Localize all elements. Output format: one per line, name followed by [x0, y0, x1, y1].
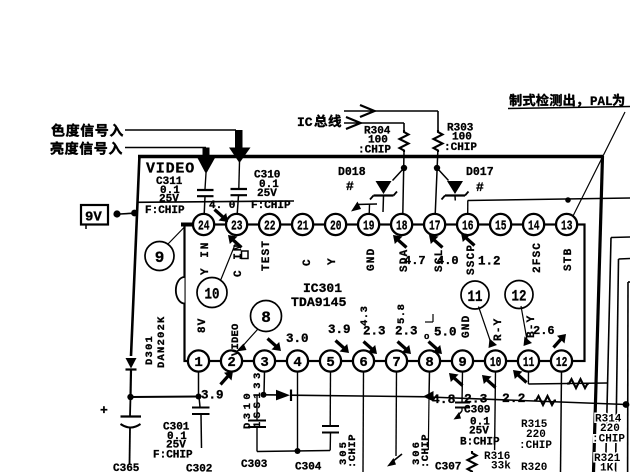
svg-text:4.3: 4.3 [359, 306, 371, 326]
svg-text:R-Y: R-Y [493, 318, 505, 341]
svg-text:1.2: 1.2 [478, 255, 501, 269]
svg-text:11: 11 [468, 288, 483, 306]
svg-text:D018: D018 [338, 166, 366, 179]
svg-text::CHIP: :CHIP [347, 434, 359, 468]
svg-text:14: 14 [528, 219, 540, 235]
svg-text:C309: C309 [464, 405, 490, 417]
svg-text::CHIP: :CHIP [519, 440, 552, 452]
svg-text:7: 7 [392, 355, 400, 371]
svg-text::CHIP: :CHIP [592, 434, 625, 446]
svg-text:DAN202K: DAN202K [156, 315, 168, 368]
svg-text:4.8: 4.8 [432, 392, 456, 407]
svg-text:4.7: 4.7 [404, 254, 426, 268]
svg-text:D301: D301 [144, 335, 156, 365]
svg-text:C304: C304 [295, 462, 322, 472]
svg-text:21: 21 [297, 219, 309, 235]
svg-text:1K: 1K [600, 463, 614, 472]
svg-text:3.0: 3.0 [286, 332, 309, 346]
svg-text:8: 8 [261, 309, 271, 327]
svg-text:D017: D017 [466, 166, 494, 179]
svg-text:24: 24 [198, 219, 210, 235]
svg-text:R320: R320 [521, 462, 547, 472]
svg-text:25V: 25V [257, 188, 277, 200]
svg-text:3.9: 3.9 [201, 389, 224, 403]
svg-text:8V: 8V [197, 317, 209, 333]
svg-text:#: # [476, 180, 484, 195]
svg-text:1: 1 [194, 355, 202, 371]
svg-text:C IN: C IN [233, 243, 245, 277]
svg-text:4. 0: 4. 0 [209, 200, 235, 212]
svg-text:C: C [302, 258, 314, 266]
svg-text:20: 20 [330, 219, 342, 235]
svg-text:VIDEO: VIDEO [230, 323, 242, 356]
svg-text:25V: 25V [159, 194, 179, 206]
svg-text:STB: STB [563, 248, 575, 271]
svg-text:12: 12 [512, 287, 527, 305]
svg-text:C302: C302 [186, 464, 212, 472]
svg-text:SSCP: SSCP [466, 244, 478, 275]
svg-text:19: 19 [363, 219, 375, 235]
svg-text::CHIP: :CHIP [444, 142, 477, 154]
svg-text:+: + [100, 403, 108, 418]
svg-text:2.6: 2.6 [533, 324, 555, 338]
svg-text:8: 8 [425, 355, 433, 371]
svg-text:12: 12 [556, 355, 568, 371]
svg-text:2FSC: 2FSC [532, 242, 544, 273]
svg-text:C307: C307 [435, 462, 461, 472]
svg-text:23: 23 [231, 219, 243, 235]
svg-text:F:CHIP: F:CHIP [153, 450, 193, 462]
svg-text:3.9: 3.9 [328, 323, 351, 337]
svg-text:F:CHIP: F:CHIP [251, 200, 291, 212]
svg-text::CHIP: :CHIP [420, 434, 432, 468]
svg-text:15: 15 [495, 219, 507, 235]
svg-text:16: 16 [462, 219, 474, 235]
svg-text:33k: 33k [491, 461, 511, 472]
svg-text:9: 9 [155, 249, 165, 267]
svg-text:IC301: IC301 [303, 281, 342, 296]
svg-text:2: 2 [227, 355, 235, 371]
svg-text:VIDEO: VIDEO [146, 161, 195, 178]
svg-text:TEST: TEST [261, 240, 273, 271]
svg-text:Y: Y [327, 257, 339, 265]
svg-text:6: 6 [359, 355, 367, 371]
svg-text:5: 5 [326, 355, 334, 371]
svg-text:18: 18 [396, 219, 408, 235]
svg-text:C303: C303 [241, 459, 268, 471]
svg-text:4: 4 [293, 355, 301, 371]
svg-text:10: 10 [205, 285, 220, 303]
svg-text:10: 10 [490, 355, 502, 371]
svg-text:3: 3 [260, 355, 268, 371]
svg-text:o: o [424, 332, 429, 342]
svg-text:9: 9 [458, 355, 466, 371]
svg-text:GND: GND [461, 315, 473, 338]
svg-text:13: 13 [561, 219, 573, 235]
svg-text:Y IN: Y IN [200, 241, 212, 275]
svg-text:2.3: 2.3 [395, 325, 418, 339]
svg-text:F:CHIP: F:CHIP [145, 205, 185, 217]
svg-text:9V: 9V [85, 210, 102, 226]
svg-text:GND: GND [366, 248, 378, 271]
svg-text:TDA9145: TDA9145 [291, 295, 346, 310]
svg-text:1SS133: 1SS133 [252, 369, 264, 428]
svg-text:C365: C365 [113, 463, 140, 472]
svg-text:5.0: 5.0 [434, 326, 457, 340]
svg-text:2.2: 2.2 [502, 391, 526, 406]
svg-text:#: # [346, 179, 354, 194]
svg-text:22: 22 [264, 219, 276, 235]
svg-text:4.0: 4.0 [437, 254, 459, 268]
svg-text:11: 11 [523, 355, 535, 371]
svg-text:5.8: 5.8 [396, 304, 408, 324]
svg-text:IC: IC [297, 115, 313, 130]
svg-text:17: 17 [429, 219, 441, 235]
